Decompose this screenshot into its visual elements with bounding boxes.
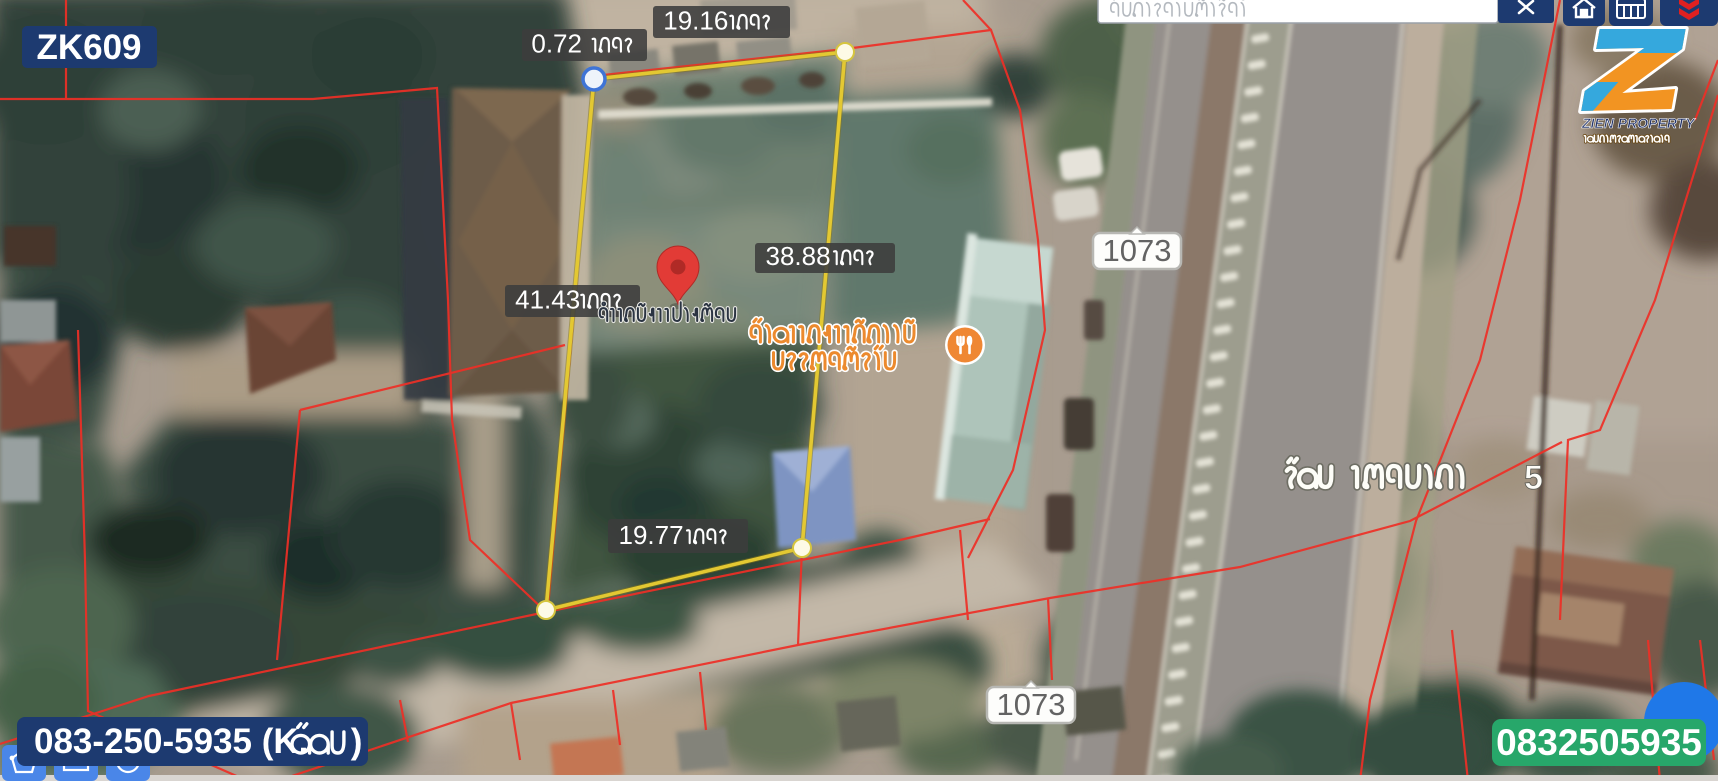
svg-text:19.16: 19.16 [663, 6, 728, 36]
svg-text:38.88: 38.88 [766, 241, 831, 271]
svg-text:083-250-5935 (K.: 083-250-5935 (K. [34, 722, 308, 761]
svg-text:5: 5 [1524, 459, 1543, 497]
svg-text:1073: 1073 [997, 687, 1066, 722]
svg-text:ZK609: ZK609 [36, 28, 141, 67]
svg-text:): ) [351, 722, 363, 761]
svg-text:0.72: 0.72 [531, 29, 582, 59]
svg-text:19.77: 19.77 [619, 520, 684, 550]
svg-text:0832505935: 0832505935 [1496, 722, 1702, 763]
svg-text:1073: 1073 [1103, 233, 1172, 268]
svg-text:ZIEN PROPERTY: ZIEN PROPERTY [1581, 115, 1696, 131]
svg-text:41.43: 41.43 [515, 285, 580, 315]
